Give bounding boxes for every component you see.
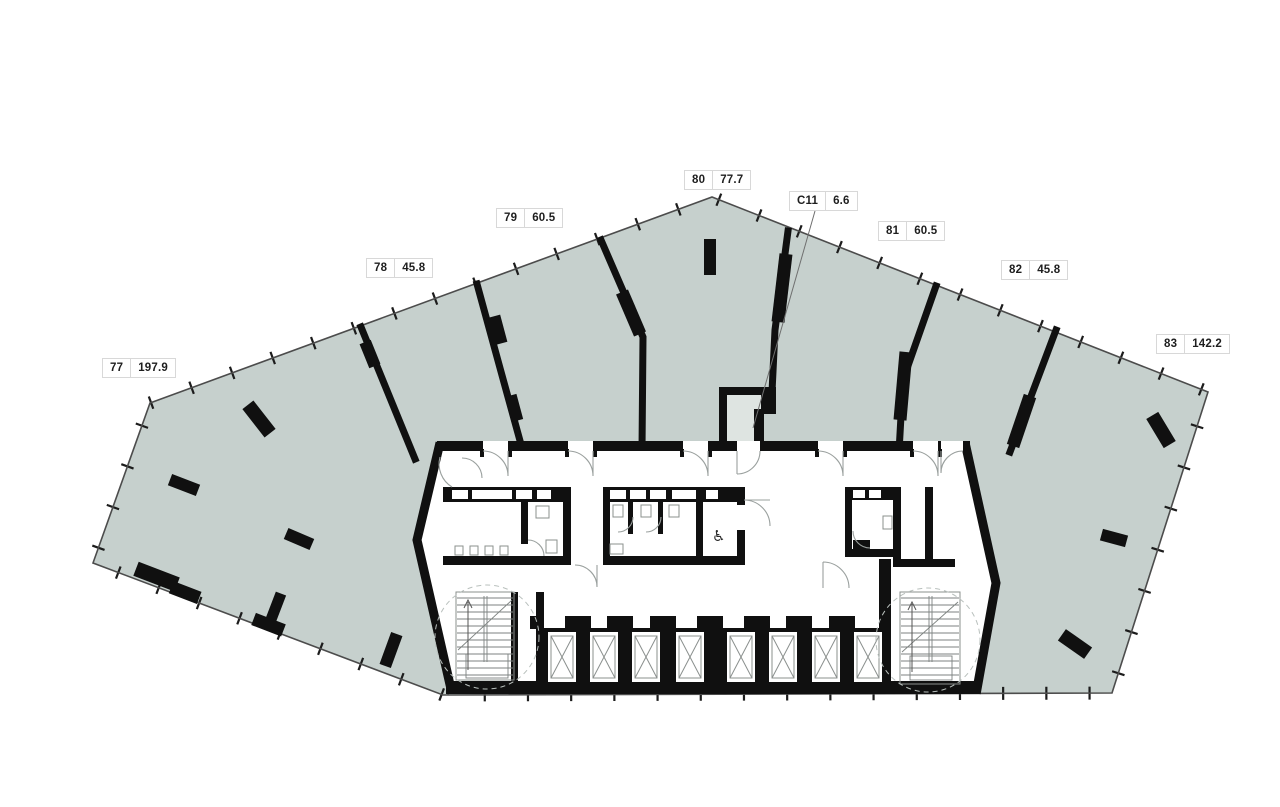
unit-number: 79 xyxy=(497,209,525,227)
unit-label-80[interactable]: 80 77.7 xyxy=(684,170,751,190)
unit-label-81[interactable]: 81 60.5 xyxy=(878,221,945,241)
unit-number: 82 xyxy=(1002,261,1030,279)
unit-area: 6.6 xyxy=(826,192,857,210)
floor-plan-canvas: ♿ xyxy=(0,0,1280,807)
unit-area: 142.2 xyxy=(1185,335,1229,353)
unit-label-79[interactable]: 79 60.5 xyxy=(496,208,563,228)
floor-plan-page: ♿ xyxy=(0,0,1280,807)
unit-number: 81 xyxy=(879,222,907,240)
unit-label-82[interactable]: 82 45.8 xyxy=(1001,260,1068,280)
unit-label-c11[interactable]: C11 6.6 xyxy=(789,191,858,211)
unit-number: 77 xyxy=(103,359,131,377)
unit-number: 80 xyxy=(685,171,713,189)
unit-label-77[interactable]: 77 197.9 xyxy=(102,358,176,378)
unit-area: 60.5 xyxy=(907,222,944,240)
wheelchair-icon: ♿ xyxy=(712,527,725,545)
unit-label-83[interactable]: 83 142.2 xyxy=(1156,334,1230,354)
unit-area: 77.7 xyxy=(713,171,750,189)
unit-number: 78 xyxy=(367,259,395,277)
unit-label-78[interactable]: 78 45.8 xyxy=(366,258,433,278)
unit-number: 83 xyxy=(1157,335,1185,353)
unit-area: 60.5 xyxy=(525,209,562,227)
shaft-caps xyxy=(565,616,855,629)
core: ♿ xyxy=(416,441,997,694)
column xyxy=(704,239,716,275)
unit-area: 45.8 xyxy=(395,259,432,277)
unit-area: 197.9 xyxy=(131,359,175,377)
unit-number: C11 xyxy=(790,192,826,210)
unit-area: 45.8 xyxy=(1030,261,1067,279)
